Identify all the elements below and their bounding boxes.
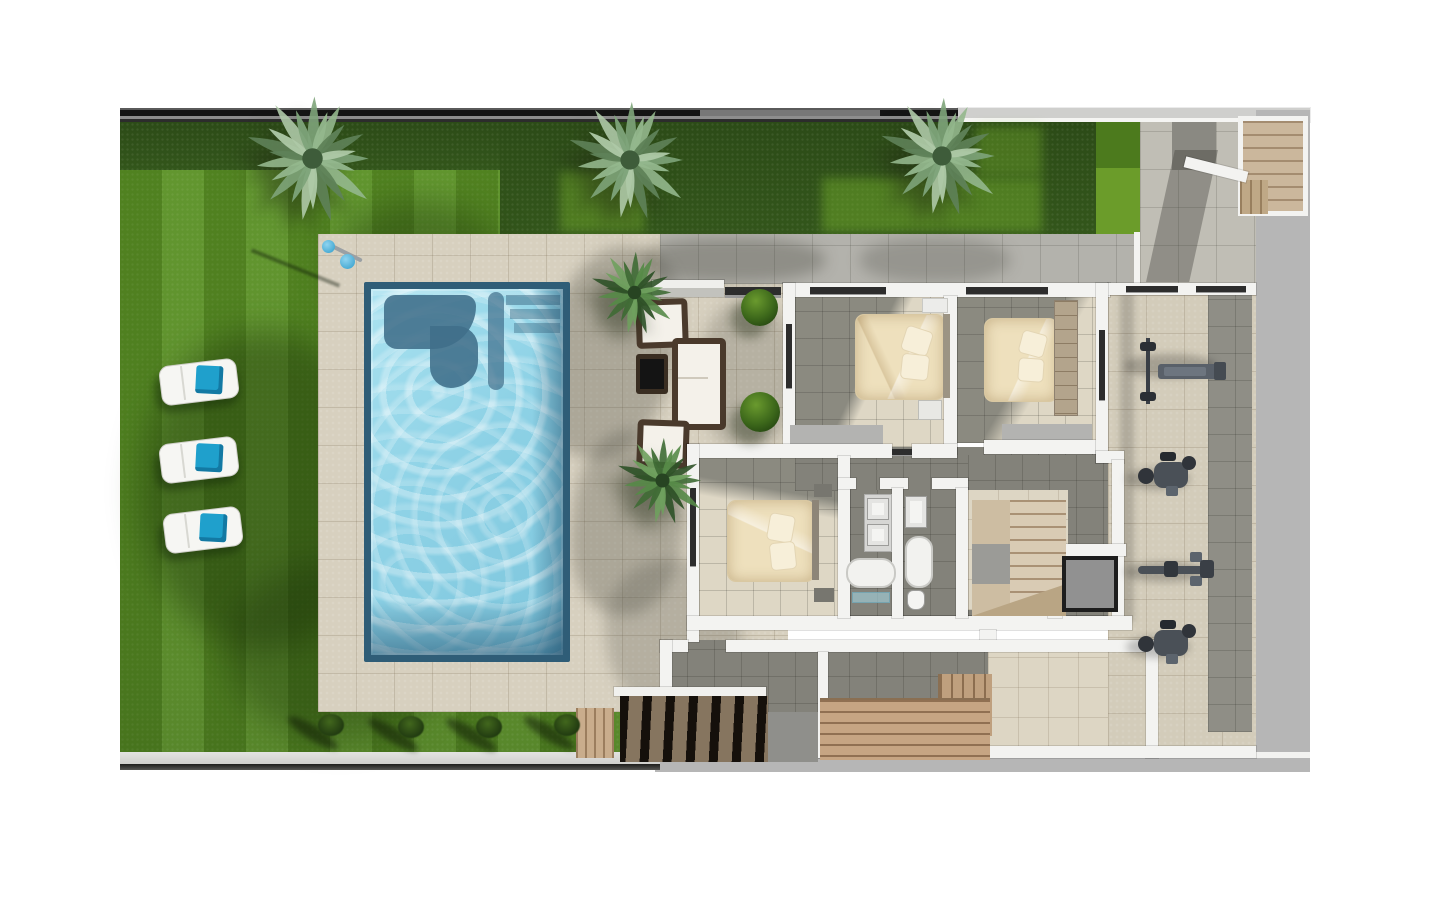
elevator xyxy=(1062,556,1118,612)
side-table xyxy=(918,400,942,420)
window-terrace xyxy=(1196,286,1246,292)
machine-part xyxy=(1182,624,1196,638)
machine-part xyxy=(1214,362,1226,380)
shrub xyxy=(318,714,344,736)
bed-headboard xyxy=(943,314,950,398)
machine-part xyxy=(1166,486,1178,496)
shrub xyxy=(476,716,502,738)
palm-tree-top-center-icon xyxy=(561,91,699,229)
bed-pillow xyxy=(766,512,796,544)
sink xyxy=(867,524,889,546)
bed-headboard xyxy=(812,500,819,580)
palm-deck-upper-icon xyxy=(586,244,683,341)
wall-bathroom-divider xyxy=(892,488,903,618)
sun-lounger xyxy=(158,357,240,406)
bottom-path-dark-edge xyxy=(120,764,660,770)
sun-lounger xyxy=(162,505,244,554)
palm-shadow-on-walkway xyxy=(860,238,1010,282)
toilet xyxy=(907,590,925,610)
wall-bedroom1-bottom xyxy=(687,444,892,458)
dresser xyxy=(922,298,948,313)
sink xyxy=(905,496,927,528)
window-right xyxy=(1099,330,1105,400)
window-bedroom1 xyxy=(810,287,886,294)
pool-bottom-shadow xyxy=(371,600,563,655)
round-bush xyxy=(741,289,778,326)
entry-stairs-turn xyxy=(1240,180,1268,214)
sauna-bench-horizontal xyxy=(820,698,990,760)
side-table xyxy=(814,484,832,497)
coffee-table xyxy=(636,354,668,394)
machine-part xyxy=(1182,456,1196,470)
gym-machine-exercise-bike xyxy=(1138,452,1230,524)
palm-tree-top-right-icon xyxy=(873,87,1011,225)
blue-towel xyxy=(199,513,227,542)
wardrobe xyxy=(1054,300,1078,416)
pool-divider-column xyxy=(488,292,504,390)
machine-part xyxy=(1166,654,1178,664)
wall-lowerroom-top-b xyxy=(726,640,1156,652)
door-threshold xyxy=(892,449,912,455)
basement-stair-treads xyxy=(620,696,768,762)
bed-double xyxy=(855,314,945,400)
bed-pillow xyxy=(900,353,931,382)
glass-shelf xyxy=(852,592,890,603)
window-bedroom2 xyxy=(966,287,1048,294)
window-left xyxy=(786,324,792,388)
pool-bench-arm xyxy=(430,326,478,388)
shrub xyxy=(554,714,580,736)
bed-pillow xyxy=(1017,357,1045,383)
blue-towel xyxy=(195,443,223,472)
window-terrace xyxy=(1126,286,1178,292)
machine-part xyxy=(1140,342,1156,351)
machine-part xyxy=(1200,560,1214,578)
bathtub xyxy=(905,536,933,588)
machine-part xyxy=(1140,392,1156,401)
blue-towel xyxy=(195,365,223,394)
sink xyxy=(867,498,889,520)
bedroom1-closet xyxy=(790,425,883,445)
grass-strip-right xyxy=(1096,122,1140,234)
machine-part xyxy=(1138,636,1154,652)
bed-double xyxy=(727,500,815,582)
shower-head xyxy=(322,240,335,253)
wall-bottom-main xyxy=(687,616,1132,630)
gym-machine-bench-press xyxy=(1138,338,1230,410)
machine-part xyxy=(1164,367,1206,376)
machine-part xyxy=(1160,620,1176,629)
shrub xyxy=(398,716,424,738)
wall-bathroom-right xyxy=(956,488,968,618)
sun-lounger xyxy=(158,435,240,484)
palm-deck-lower-icon xyxy=(612,430,713,531)
gym-machine-exercise-bike xyxy=(1138,620,1230,692)
wall-bedroom1-bottom-stub xyxy=(912,444,957,458)
wicker-sofa xyxy=(672,338,726,430)
wood-deck-strip xyxy=(576,708,614,758)
shower-head xyxy=(340,254,355,269)
gym-machine-rowing-machine xyxy=(1138,548,1230,620)
wall-bathroom-top-a xyxy=(838,478,856,489)
machine-part xyxy=(1138,468,1154,484)
machine-part xyxy=(1164,561,1178,577)
floor-plan-canvas xyxy=(0,0,1440,902)
palm-tree-top-left-icon xyxy=(239,85,386,232)
round-bush xyxy=(740,392,780,432)
machine-part xyxy=(1160,452,1176,461)
basement-landing xyxy=(768,712,818,762)
wall-bedroom2-bottom xyxy=(984,440,1096,454)
basement-stair-edge xyxy=(614,687,766,696)
bed-pillow xyxy=(769,541,798,572)
machine-part xyxy=(1190,576,1202,586)
top-fence-gray-segment xyxy=(700,110,880,116)
side-table xyxy=(814,588,834,602)
staircase-landing xyxy=(972,544,1010,584)
bedroom2-closet xyxy=(1002,424,1092,441)
bathtub xyxy=(846,558,896,588)
